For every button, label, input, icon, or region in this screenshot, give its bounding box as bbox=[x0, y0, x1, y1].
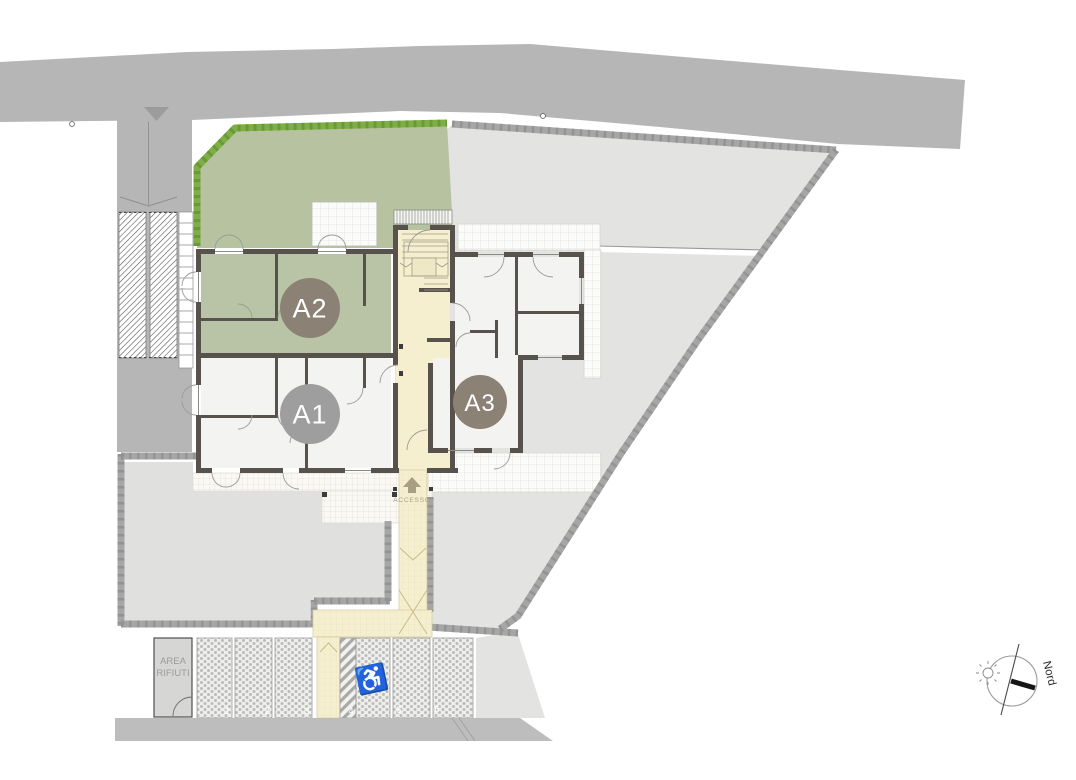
parking-strip-hatch bbox=[150, 212, 177, 358]
walkway-vertical bbox=[317, 637, 340, 718]
parking-number: 5 bbox=[396, 705, 401, 715]
sidewalk-surface bbox=[115, 718, 553, 741]
site-plan-page: ACCESSO AREA RIFIUTI ♿ 1 2 3 4 5 6 bbox=[0, 0, 1076, 780]
sidewalk bbox=[115, 718, 553, 741]
parking-number: 3 bbox=[304, 706, 309, 716]
terrace-north-a3 bbox=[458, 224, 600, 250]
compass: Nord bbox=[976, 644, 1058, 715]
terrace-east-a3 bbox=[584, 250, 601, 378]
parking-strip-hatch bbox=[119, 212, 146, 358]
parking-number: 1 bbox=[224, 706, 229, 716]
side-steps-ladder bbox=[179, 212, 193, 368]
unit-a1-label: A1 bbox=[292, 400, 327, 430]
unit-badge-a1: A1 bbox=[280, 384, 340, 444]
parking-number: 4 bbox=[348, 706, 353, 716]
parking-number: 6 bbox=[434, 704, 439, 714]
parking-number: 2 bbox=[264, 706, 269, 716]
terrace-access-strip bbox=[193, 473, 428, 491]
site-plan-drawing: ACCESSO AREA RIFIUTI ♿ 1 2 3 4 5 6 bbox=[0, 0, 1076, 780]
manhole-icon bbox=[70, 122, 75, 127]
yard-taper bbox=[476, 631, 545, 718]
compass-needle-icon bbox=[1011, 681, 1035, 688]
entry-steps bbox=[394, 210, 452, 224]
waste-area-label-1: AREA bbox=[160, 656, 187, 667]
manhole-icon bbox=[541, 114, 546, 119]
compass-axis bbox=[1001, 644, 1019, 715]
access-label: ACCESSO bbox=[393, 497, 430, 504]
unit-a3-label: A3 bbox=[464, 390, 495, 417]
sun-icon bbox=[976, 661, 1000, 685]
waste-area-label-2: RIFIUTI bbox=[156, 668, 189, 679]
unit-badge-a3: A3 bbox=[453, 375, 507, 429]
unit-badge-a2: A2 bbox=[280, 278, 340, 338]
compass-north-label: Nord bbox=[1040, 660, 1058, 687]
unit-a2-label: A2 bbox=[292, 294, 327, 324]
waste-area: AREA RIFIUTI bbox=[154, 638, 192, 717]
